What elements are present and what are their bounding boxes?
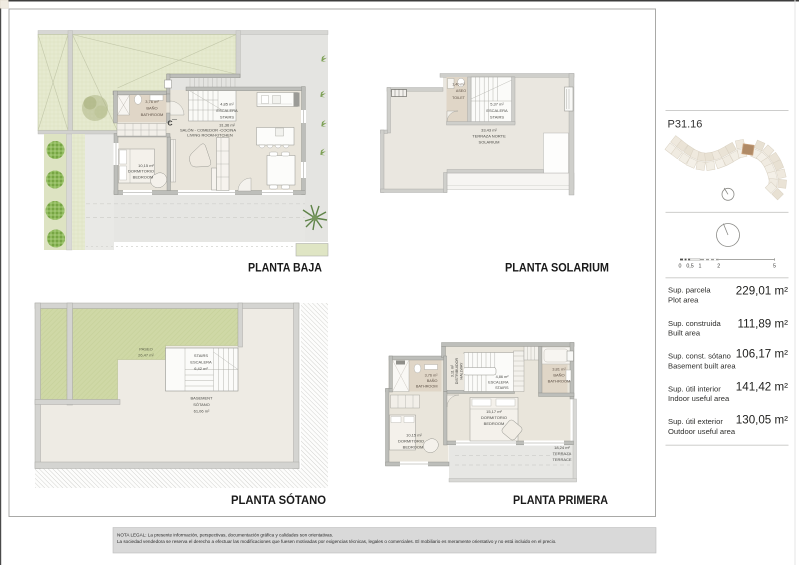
svg-text:BAÑO: BAÑO [146, 106, 157, 111]
svg-text:229,01 m²: 229,01 m² [736, 284, 788, 297]
svg-text:6,42 m²: 6,42 m² [194, 366, 208, 371]
svg-text:TOILET: TOILET [452, 96, 466, 100]
svg-text:La sociedad vendedora se reser: La sociedad vendedora se reserva el dere… [117, 539, 556, 544]
svg-text:1: 1 [699, 264, 702, 270]
svg-text:3,76 m²: 3,76 m² [425, 374, 439, 378]
svg-text:15,17 m²: 15,17 m² [486, 409, 502, 414]
svg-text:Outdoor useful area: Outdoor useful area [668, 427, 736, 436]
svg-text:106,17 m²: 106,17 m² [736, 347, 788, 360]
svg-text:0: 0 [679, 264, 682, 270]
svg-text:130,05 m²: 130,05 m² [736, 413, 788, 426]
svg-text:5: 5 [773, 264, 776, 270]
svg-text:TERRAZA NORTE: TERRAZA NORTE [472, 134, 506, 139]
svg-text:DORMITORIO: DORMITORIO [398, 439, 424, 444]
svg-text:Built area: Built area [668, 329, 701, 338]
svg-text:BEDROOM: BEDROOM [403, 445, 424, 450]
svg-text:BASEMENT: BASEMENT [190, 396, 213, 401]
svg-text:BATHROOM: BATHROOM [141, 112, 164, 117]
svg-text:TERRAZA: TERRAZA [553, 451, 572, 456]
svg-text:4,85 m²: 4,85 m² [220, 102, 234, 107]
svg-text:C: C [168, 121, 173, 128]
svg-text:4,86 m²: 4,86 m² [496, 375, 510, 379]
svg-text:Indoor useful area: Indoor useful area [668, 394, 730, 403]
svg-text:BAÑO: BAÑO [553, 373, 564, 378]
svg-text:PLANTA BAJA: PLANTA BAJA [248, 261, 322, 275]
svg-text:ESCALERA: ESCALERA [216, 108, 238, 113]
svg-text:3,11 m²: 3,11 m² [451, 364, 455, 377]
svg-text:P31.16: P31.16 [668, 119, 703, 131]
svg-text:Sup. útil interior: Sup. útil interior [668, 384, 721, 393]
svg-text:Sup. const. sótano: Sup. const. sótano [668, 352, 731, 361]
svg-text:Sup. útil exterior: Sup. útil exterior [668, 417, 723, 426]
svg-text:BEDROOM: BEDROOM [484, 421, 505, 426]
svg-text:Plot area: Plot area [668, 295, 699, 304]
svg-text:PLANTA SÓTANO: PLANTA SÓTANO [231, 492, 326, 507]
svg-text:STAIRS: STAIRS [194, 353, 208, 358]
svg-text:0,5: 0,5 [686, 264, 693, 270]
svg-text:10,15 m²: 10,15 m² [406, 433, 422, 438]
svg-text:SOLARIUM: SOLARIUM [479, 140, 500, 145]
svg-text:TERRACE: TERRACE [552, 457, 571, 462]
svg-text:18,24 m²: 18,24 m² [554, 445, 570, 450]
svg-text:61,06 m²: 61,06 m² [194, 409, 210, 414]
svg-text:DISTRIBUIDOR: DISTRIBUIDOR [455, 357, 459, 384]
svg-text:SÓTANO: SÓTANO [193, 402, 210, 407]
svg-text:ESCALERA: ESCALERA [486, 108, 508, 113]
svg-text:ESCALERA: ESCALERA [488, 381, 509, 385]
svg-text:3,76 m²: 3,76 m² [145, 99, 159, 104]
svg-text:BEDROOM: BEDROOM [133, 175, 154, 180]
svg-text:PASEO: PASEO [139, 347, 153, 352]
svg-text:HALLWAY: HALLWAY [460, 362, 464, 379]
svg-text:33,43 m²: 33,43 m² [481, 128, 497, 133]
svg-text:111,89 m²: 111,89 m² [738, 317, 789, 330]
svg-text:BAÑO: BAÑO [427, 378, 438, 383]
svg-text:STAIRS: STAIRS [495, 386, 509, 390]
svg-text:5,37 m²: 5,37 m² [490, 102, 504, 107]
svg-text:NOTA LEGAL: La presente inform: NOTA LEGAL: La presente información, per… [117, 533, 333, 538]
svg-text:PLANTA PRIMERA: PLANTA PRIMERA [513, 493, 608, 507]
svg-text:26,47 m²: 26,47 m² [138, 353, 154, 358]
svg-text:Basement built area: Basement built area [668, 361, 736, 370]
svg-text:STAIRS: STAIRS [490, 115, 504, 120]
svg-text:DORMITORIO: DORMITORIO [481, 415, 507, 420]
svg-text:3,81 m²: 3,81 m² [552, 367, 566, 372]
svg-text:1,40 m²: 1,40 m² [452, 83, 465, 87]
svg-text:Sup. construida: Sup. construida [668, 319, 722, 328]
svg-text:2: 2 [717, 264, 720, 270]
svg-text:BATHROOM: BATHROOM [416, 385, 438, 389]
svg-text:LIVING ROOM-KITCHEN: LIVING ROOM-KITCHEN [187, 133, 233, 138]
svg-text:ESCALERA: ESCALERA [190, 360, 212, 365]
svg-text:BATHROOM: BATHROOM [548, 379, 571, 384]
svg-text:STAIRS: STAIRS [220, 115, 234, 120]
svg-text:141,42 m²: 141,42 m² [736, 380, 788, 393]
svg-text:ASEO: ASEO [456, 89, 466, 93]
svg-text:DORMITORIO: DORMITORIO [128, 169, 154, 174]
svg-text:10,15 m²: 10,15 m² [138, 163, 154, 168]
svg-text:Sup. parcela: Sup. parcela [668, 286, 711, 295]
svg-text:PLANTA SOLARIUM: PLANTA SOLARIUM [505, 261, 609, 275]
